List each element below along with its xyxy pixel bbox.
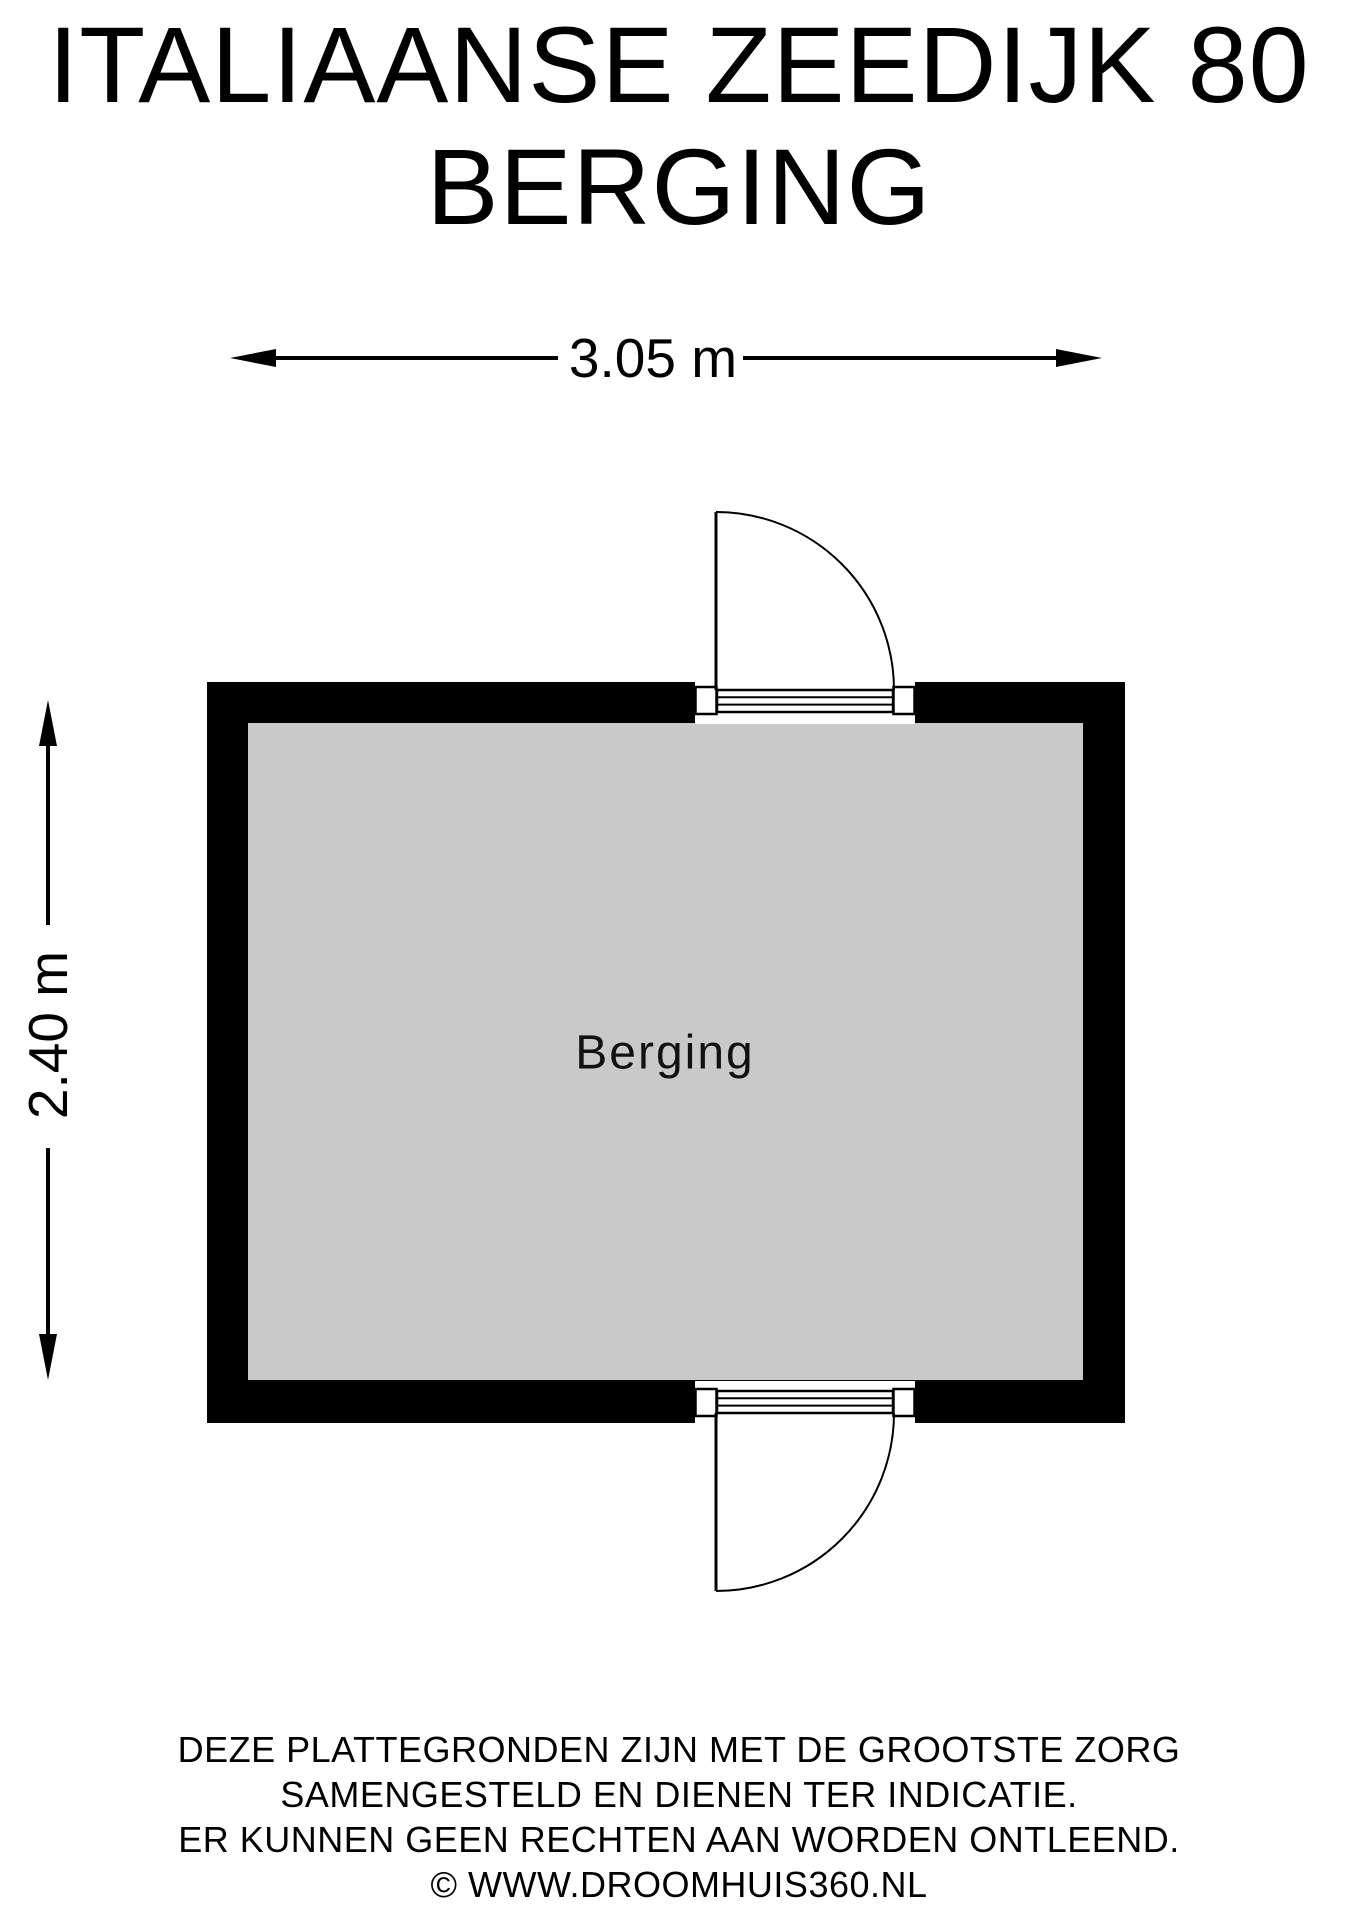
- top-door-frame-right: [894, 687, 915, 714]
- arrowhead-left-icon: [230, 349, 276, 367]
- disclaimer-line2: SAMENGESTELD EN DIENEN TER INDICATIE.: [0, 1772, 1358, 1817]
- top-door-frame-left: [696, 687, 717, 714]
- disclaimer: DEZE PLATTEGRONDEN ZIJN MET DE GROOTSTE …: [0, 1727, 1358, 1907]
- plan-title-line1: ITALIAANSE ZEEDIJK 80: [0, 4, 1358, 126]
- bottom-door-frame-right: [894, 1389, 915, 1416]
- arrowhead-right-icon: [1056, 349, 1102, 367]
- top-door-swing-arc: [716, 512, 894, 690]
- plan-title: ITALIAANSE ZEEDIJK 80 BERGING: [0, 4, 1358, 248]
- top-door-threshold: [717, 690, 893, 712]
- bottom-door-swing-arc: [716, 1413, 894, 1591]
- arrowhead-up-icon: [39, 700, 57, 746]
- dim-width-label: 3.05 m: [569, 326, 737, 390]
- room-name-label: Berging: [575, 1026, 754, 1081]
- bottom-door-threshold: [717, 1391, 893, 1413]
- arrowhead-down-icon: [39, 1334, 57, 1380]
- disclaimer-line1: DEZE PLATTEGRONDEN ZIJN MET DE GROOTSTE …: [0, 1727, 1358, 1772]
- disclaimer-copyright: © WWW.DROOMHUIS360.NL: [0, 1862, 1358, 1907]
- dim-height-label: 2.40 m: [16, 951, 80, 1119]
- bottom-door-frame-left: [696, 1389, 717, 1416]
- plan-title-line2: BERGING: [0, 126, 1358, 248]
- floorplan-page: ITALIAANSE ZEEDIJK 80 BERGING 3.05 m 2.4…: [0, 0, 1358, 1920]
- disclaimer-line3: ER KUNNEN GEEN RECHTEN AAN WORDEN ONTLEE…: [0, 1817, 1358, 1862]
- floorplan-drawing: [0, 0, 1358, 1920]
